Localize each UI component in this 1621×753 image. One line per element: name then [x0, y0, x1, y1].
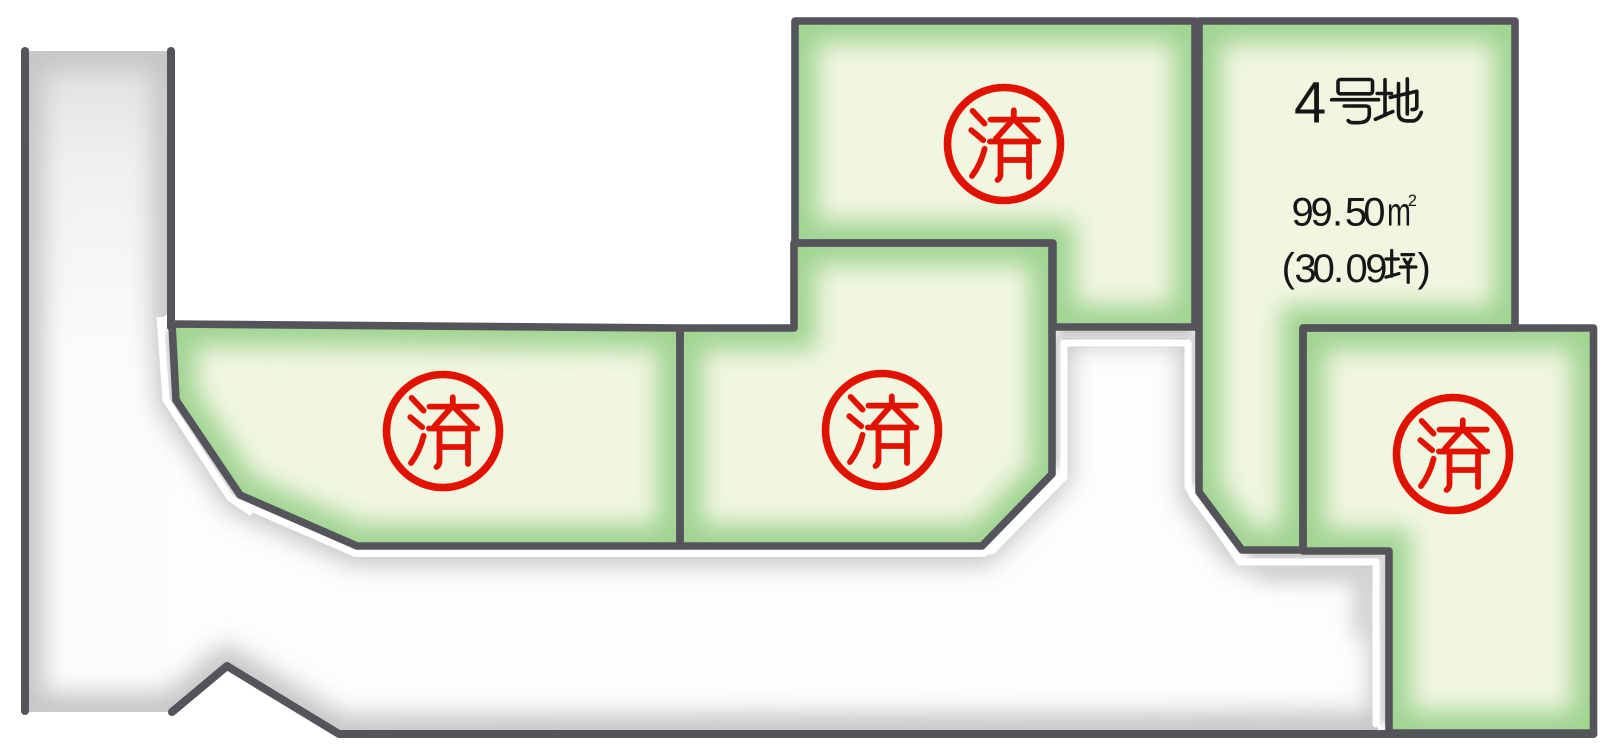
svg-text:99.50: 99.50	[1292, 191, 1386, 235]
svg-text:30.09: 30.09	[1294, 247, 1387, 291]
svg-text:2: 2	[1408, 192, 1417, 210]
svg-text:): )	[1418, 246, 1431, 290]
svg-text:4: 4	[1294, 71, 1326, 136]
